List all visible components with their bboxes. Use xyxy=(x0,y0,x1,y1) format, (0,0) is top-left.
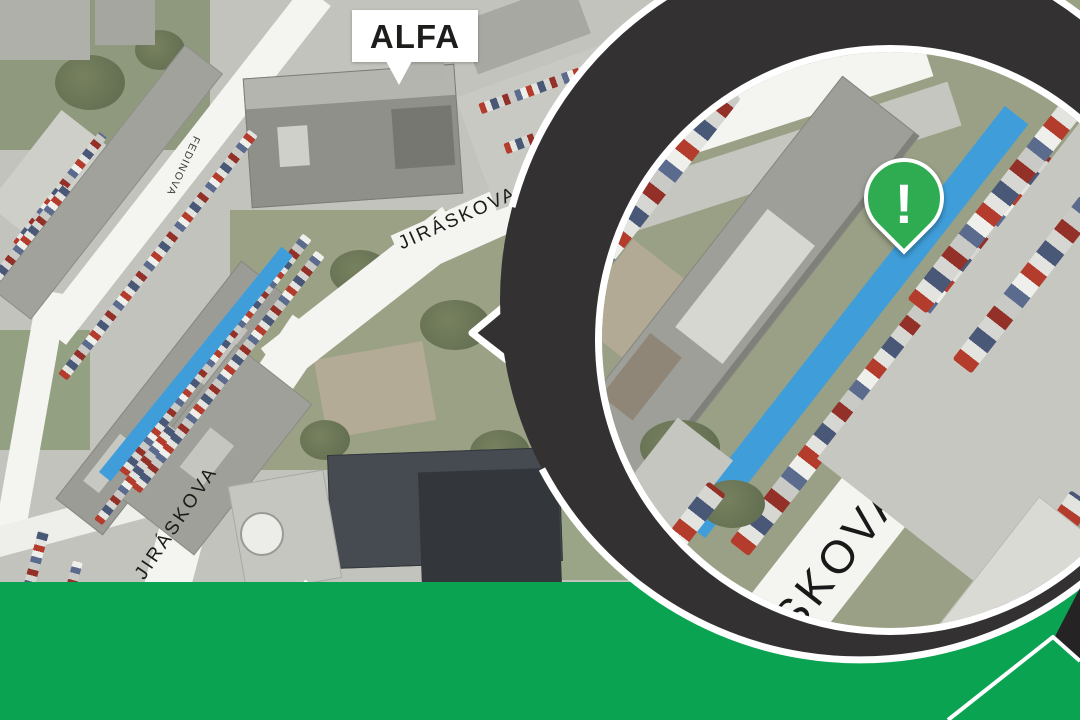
corner-accent xyxy=(0,0,1080,720)
corner-green-triangle xyxy=(948,637,1080,720)
announcement-graphic: FEDINOVA JIRÁSKOVA JIRÁSKOVA ALFA Dvory … xyxy=(0,0,1080,720)
